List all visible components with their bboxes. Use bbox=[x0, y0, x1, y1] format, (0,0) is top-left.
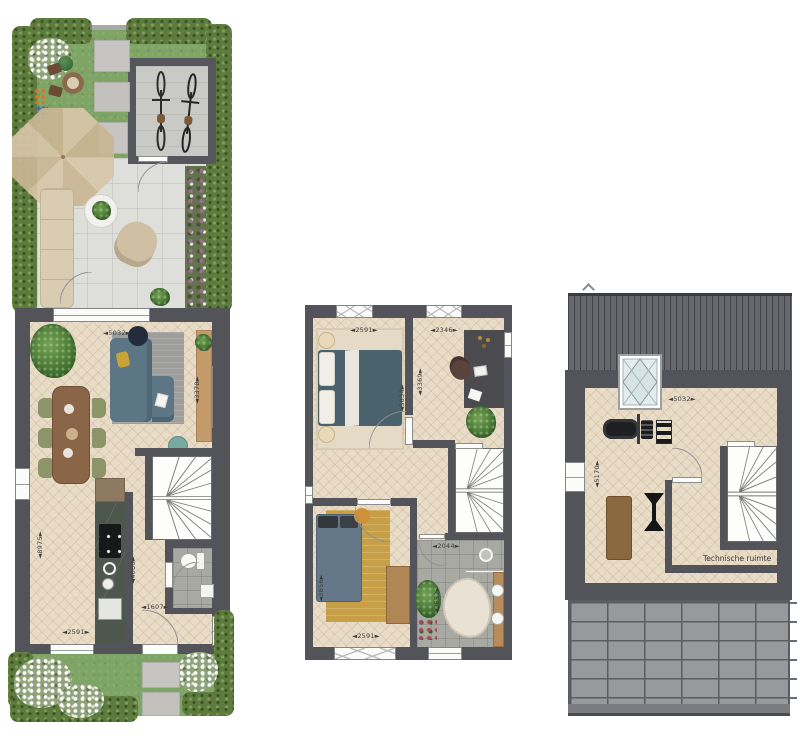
laptop bbox=[473, 365, 487, 377]
floor-plan-canvas: { "palette": { "background": "#ffffff", … bbox=[0, 0, 800, 749]
bathroom-door bbox=[419, 534, 445, 539]
wall-bedroom1-bottom-a bbox=[313, 498, 357, 506]
wc-basin bbox=[200, 584, 214, 598]
study-window bbox=[426, 305, 462, 318]
dining-chair bbox=[92, 458, 106, 478]
path-paver bbox=[142, 692, 180, 716]
attic-wall-right bbox=[777, 388, 792, 583]
nightstand bbox=[318, 426, 335, 443]
nightstand bbox=[318, 332, 335, 349]
flower-border bbox=[185, 166, 208, 310]
dim-living-depth: ◄3378► bbox=[194, 376, 201, 404]
wall-bathroom-top bbox=[445, 533, 504, 540]
cable-machine bbox=[641, 492, 667, 532]
bedroom2-door-swing bbox=[355, 506, 391, 542]
shed-door-swing bbox=[138, 162, 168, 192]
front-door-swing bbox=[142, 610, 178, 646]
dim-attic-width: ◄5032► bbox=[668, 396, 696, 403]
sideboard-plant bbox=[195, 334, 212, 351]
dresser bbox=[386, 566, 410, 624]
left-wall-window bbox=[15, 468, 30, 500]
bathroom-window bbox=[428, 647, 462, 660]
dim-bedroom1-width: ◄2591► bbox=[350, 327, 378, 334]
barbell bbox=[637, 414, 640, 444]
dim-bedroom2-width: ◄2591► bbox=[352, 633, 380, 640]
dining-chair bbox=[38, 428, 52, 448]
wc-door-swing bbox=[173, 562, 199, 588]
stair-gate bbox=[455, 443, 483, 449]
orange-flowers bbox=[34, 88, 48, 104]
pillow bbox=[319, 352, 335, 386]
path-paver bbox=[142, 662, 180, 688]
front-hedge-bottom-right bbox=[182, 692, 234, 716]
dim-attic-depth: ◄5170► bbox=[594, 460, 601, 488]
dumbbell-rack bbox=[656, 420, 672, 444]
attic-wall-bottom bbox=[565, 583, 792, 600]
sink-basin bbox=[491, 584, 504, 597]
roof-slope-bottom bbox=[568, 600, 790, 708]
study-plant bbox=[466, 406, 496, 438]
indoor-plant-large bbox=[30, 324, 76, 378]
dim-study-depth: ◄3369► bbox=[417, 368, 424, 396]
attic-left-window bbox=[565, 462, 585, 492]
parasol-pole bbox=[61, 155, 65, 159]
techroom-door-swing bbox=[672, 448, 702, 478]
stepping-stone bbox=[94, 40, 130, 72]
techroom-wall-left bbox=[665, 480, 672, 573]
kitchen-ring bbox=[103, 562, 116, 575]
dim-width-top: ◄5032► bbox=[103, 330, 131, 337]
garden-sliding-door bbox=[53, 308, 150, 322]
dim-study-width: ◄2346► bbox=[430, 327, 458, 334]
cooktop bbox=[99, 524, 121, 558]
backdoor-swing bbox=[60, 272, 92, 304]
right-wall-window bbox=[504, 332, 512, 358]
stair-wall-left bbox=[145, 456, 152, 540]
attic-wall-top bbox=[565, 370, 792, 388]
staircase bbox=[455, 448, 504, 533]
wall-study-bottom bbox=[413, 440, 455, 448]
potted-plant bbox=[92, 201, 111, 220]
dim-total-depth: ◄8975► bbox=[37, 531, 44, 559]
wc-door bbox=[165, 562, 173, 588]
dim-bathroom-depth: ◄2652► bbox=[434, 586, 441, 614]
bed-sheet bbox=[345, 350, 359, 427]
hedge-top-right bbox=[126, 18, 212, 44]
dim-bedroom1-depth: ◄5034► bbox=[399, 384, 406, 412]
stair-wall-left bbox=[448, 448, 455, 533]
kitchen-sink bbox=[98, 598, 122, 620]
technical-room-label: Technische ruimte bbox=[703, 554, 771, 563]
techroom-wall-bottom bbox=[665, 565, 777, 573]
gym-mat bbox=[606, 496, 632, 560]
plate bbox=[63, 448, 73, 458]
attic-stair-wall-bottom bbox=[720, 542, 777, 550]
bedroom1-door-swing bbox=[369, 411, 407, 449]
pillow bbox=[319, 390, 335, 424]
attic-stair-gate bbox=[727, 441, 755, 447]
dim-hall-depth: ◄4080► bbox=[130, 556, 137, 584]
weight-plates bbox=[641, 420, 653, 439]
wc-wall-top bbox=[165, 540, 230, 548]
dining-chair bbox=[92, 398, 106, 418]
staircase bbox=[152, 456, 212, 540]
dim-bedroom2-depth: ◄3856► bbox=[318, 574, 325, 602]
bathroom-flowers bbox=[417, 618, 437, 640]
pillow-dark bbox=[318, 516, 338, 528]
attic-stair-wall-left bbox=[720, 446, 727, 542]
stepping-stone bbox=[94, 82, 130, 112]
rafter-ticks bbox=[790, 602, 797, 708]
staircase bbox=[727, 446, 777, 542]
wall-bedroom1-study bbox=[405, 318, 413, 415]
shower-head bbox=[479, 548, 493, 562]
stair-wall-top bbox=[135, 448, 214, 456]
bowl bbox=[66, 428, 78, 440]
gym-bench bbox=[603, 419, 639, 439]
dim-bathroom-width: ◄2044► bbox=[432, 543, 460, 550]
dim-hall-width: ◄1607► bbox=[141, 604, 169, 611]
bedroom1-window bbox=[336, 305, 373, 318]
desk-accessories bbox=[478, 336, 482, 340]
bicycle-icon bbox=[150, 70, 172, 154]
roof-slope-top bbox=[568, 293, 792, 373]
garden-gate bbox=[90, 25, 128, 30]
dining-chair bbox=[38, 398, 52, 418]
wall-hall-bathroom bbox=[410, 506, 417, 647]
sink-basin bbox=[491, 612, 504, 625]
dining-chair bbox=[38, 458, 52, 478]
bedroom2-window bbox=[334, 647, 396, 660]
roof-eave bbox=[568, 704, 790, 716]
sofa bbox=[110, 338, 152, 422]
bistro-table bbox=[62, 72, 84, 94]
skylight bbox=[618, 354, 662, 410]
dining-chair bbox=[92, 428, 106, 448]
kitchen-cabinet bbox=[95, 478, 125, 502]
wall-bedroom1-bottom-b bbox=[391, 498, 417, 506]
coffee-table bbox=[128, 326, 148, 346]
plate bbox=[64, 404, 74, 414]
round-sink bbox=[102, 578, 114, 590]
dim-kitchen-window: ◄2591► bbox=[62, 629, 90, 636]
bedroom2-door bbox=[357, 499, 391, 505]
terrace-plant bbox=[150, 288, 170, 306]
left-wall-window bbox=[305, 486, 313, 504]
